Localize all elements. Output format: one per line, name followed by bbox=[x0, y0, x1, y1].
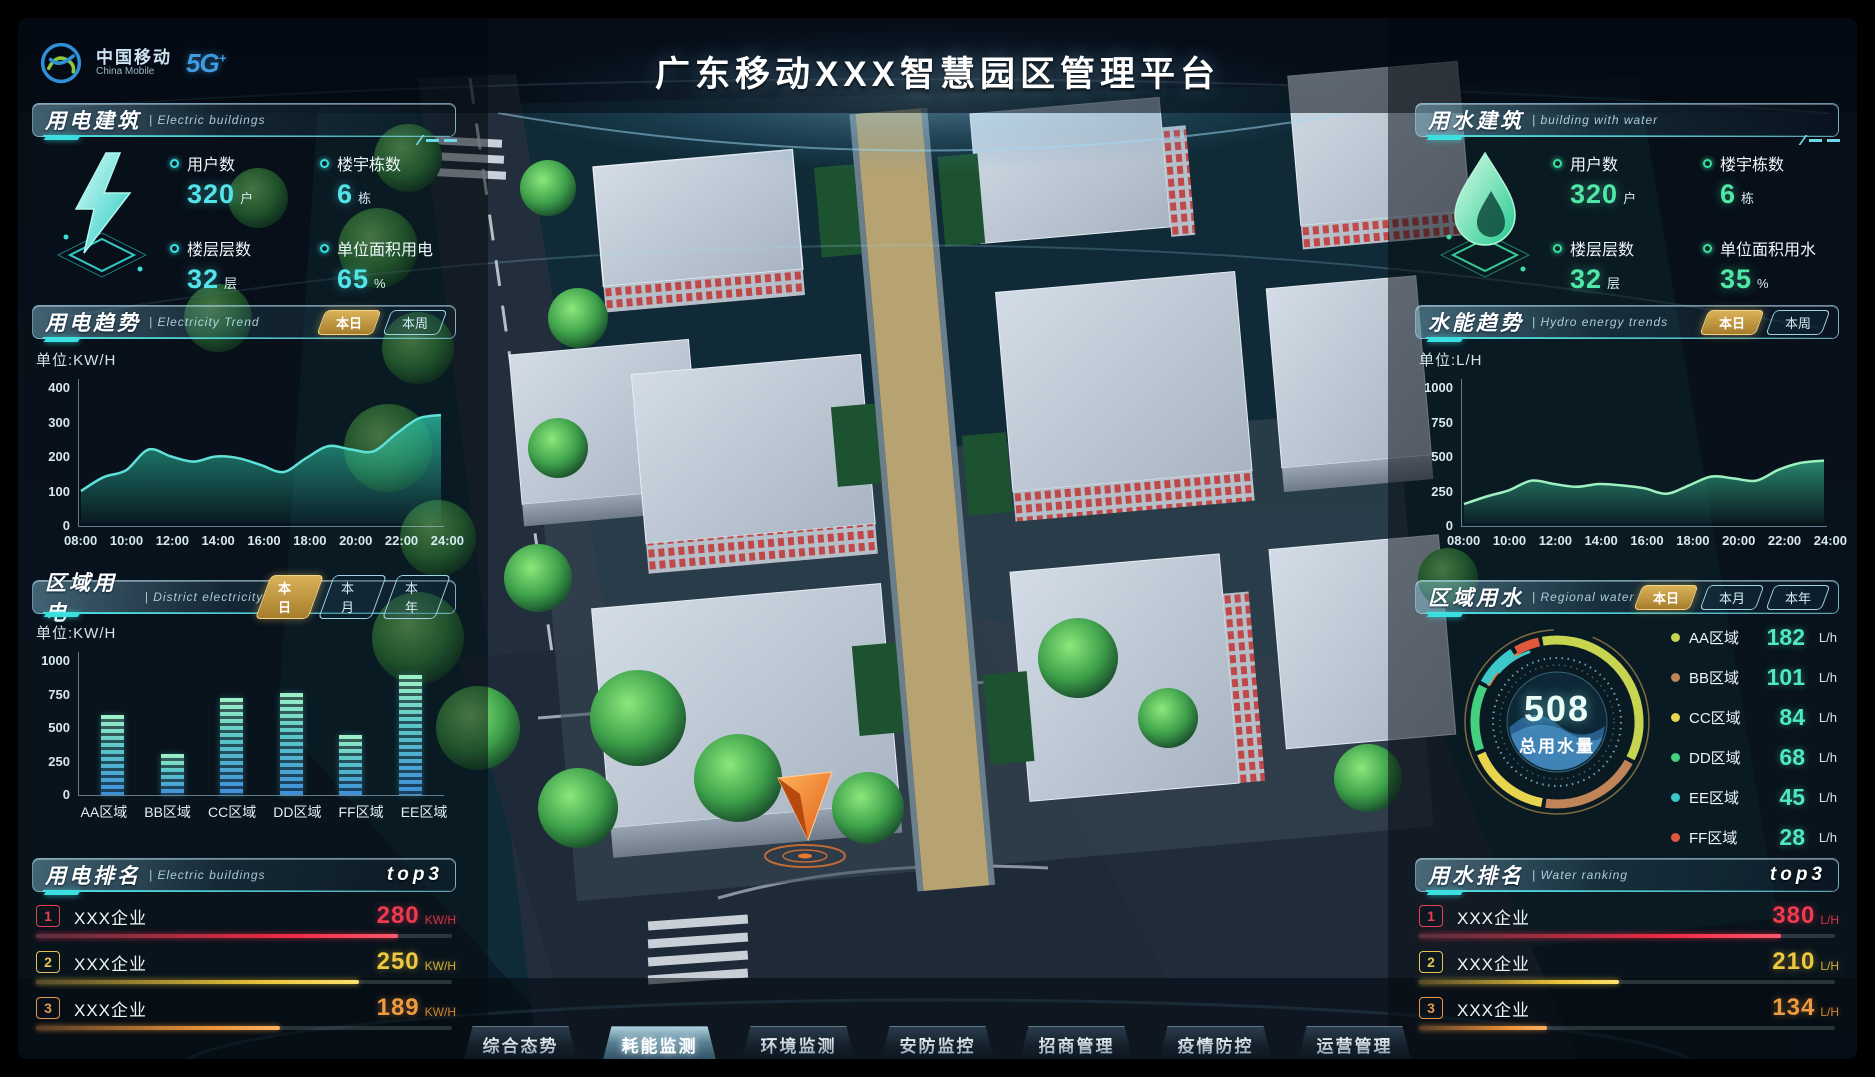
dashboard-screen: 中国移动 China Mobile 5G+ 广东移动XXX智慧园区管理平台 用电… bbox=[18, 18, 1857, 1059]
panel-title: 区域用电 bbox=[45, 567, 137, 627]
stat-building-count: 楼宇栋数 6栋 bbox=[1703, 151, 1857, 210]
rank-badge: 2 bbox=[1419, 951, 1443, 973]
ranking-list: 1 XXX企业 280 KW/H 2 XXX企业 250 KW/H 3 bbox=[36, 902, 456, 1040]
panel-header: 用水建筑 | building with water bbox=[1415, 103, 1839, 137]
legend-item: BB区域 101 L/h bbox=[1671, 664, 1837, 691]
page-title: 广东移动XXX智慧园区管理平台 bbox=[655, 46, 1220, 97]
bottom-nav: 综合态势 耗能监测 环境监测 安防监控 招商管理 疫情防控 运营管理 bbox=[464, 1026, 1412, 1059]
panel-subtitle: | Electricity Trend bbox=[149, 315, 260, 329]
legend-dot-icon bbox=[1671, 673, 1680, 682]
nav-operation-management[interactable]: 运营管理 bbox=[1298, 1026, 1412, 1059]
district-electricity-chart: 10007505002500 bbox=[32, 652, 452, 796]
legend-item: FF区域 28 L/h bbox=[1671, 824, 1837, 851]
panel-title: 用电趋势 bbox=[45, 307, 141, 337]
panel-title: 用水建筑 bbox=[1428, 105, 1524, 135]
top3-label: top3 bbox=[387, 864, 443, 886]
panel-title: 用电建筑 bbox=[45, 105, 141, 135]
stat-floor-count: 楼层层数 32层 bbox=[1553, 236, 1703, 295]
panel-subtitle: | building with water bbox=[1532, 113, 1658, 127]
location-marker-icon[interactable] bbox=[760, 770, 850, 870]
panel-electricity-trend: 用电趋势 | Electricity Trend 本日 本周 单位:KW/H 4… bbox=[32, 305, 456, 565]
stat-unit-area-water: 单位面积用水 35% bbox=[1703, 236, 1857, 295]
tab-today[interactable]: 本日 bbox=[1633, 585, 1698, 610]
panel-header: 用电趋势 | Electricity Trend 本日 本周 bbox=[32, 305, 456, 339]
tab-this-week[interactable]: 本周 bbox=[382, 310, 447, 335]
panel-title: 区域用水 bbox=[1428, 582, 1524, 612]
ranking-row: 1 XXX企业 380 L/H bbox=[1419, 902, 1839, 948]
panel-subtitle: | Hydro energy trends bbox=[1532, 315, 1668, 329]
stat-floor-count: 楼层层数 32层 bbox=[170, 236, 320, 295]
stat-unit-area-electricity: 单位面积用电 65% bbox=[320, 236, 500, 295]
panel-subtitle: | Regional water bbox=[1532, 590, 1635, 604]
stat-users: 用户数 320户 bbox=[170, 151, 320, 210]
panel-subtitle: | District electricity bbox=[145, 590, 263, 604]
brand-name-cn: 中国移动 bbox=[96, 49, 172, 67]
panel-electric-buildings: 用电建筑 | Electric buildings 用户数 320户 楼宇栋数 … bbox=[32, 103, 456, 303]
5g-badge: 5G+ bbox=[186, 48, 225, 79]
bullet-icon bbox=[170, 159, 179, 168]
tab-today[interactable]: 本日 bbox=[255, 575, 324, 619]
nav-environment-monitoring[interactable]: 环境监测 bbox=[742, 1026, 856, 1059]
water-donut-chart: 508 总用水量 bbox=[1459, 624, 1655, 820]
water-legend: AA区域 182 L/h BB区域 101 L/h CC区域 84 L/h DD… bbox=[1671, 624, 1837, 851]
panel-hydro-trend: 水能趋势 | Hydro energy trends 本日 本周 单位:L/H … bbox=[1415, 305, 1839, 565]
panel-title: 用电排名 bbox=[45, 860, 141, 890]
panel-water-ranking: 用水排名 | Water ranking top3 1 XXX企业 380 L/… bbox=[1415, 858, 1839, 1038]
legend-dot-icon bbox=[1671, 713, 1680, 722]
panel-header: 水能趋势 | Hydro energy trends 本日 本周 bbox=[1415, 305, 1839, 339]
rank-badge: 1 bbox=[36, 905, 60, 927]
rank-badge: 2 bbox=[36, 951, 60, 973]
panel-water-buildings: 用水建筑 | building with water 用户数 320户 楼宇栋数… bbox=[1415, 103, 1839, 303]
lightning-icon bbox=[46, 147, 158, 287]
panel-subtitle: | Water ranking bbox=[1532, 868, 1628, 882]
rank-badge: 3 bbox=[36, 997, 60, 1019]
rank-badge: 1 bbox=[1419, 905, 1443, 927]
ranking-row: 3 XXX企业 189 KW/H bbox=[36, 994, 456, 1040]
ranking-row: 3 XXX企业 134 L/H bbox=[1419, 994, 1839, 1040]
panel-header: 用水排名 | Water ranking top3 bbox=[1415, 858, 1839, 892]
china-mobile-logo-icon bbox=[40, 42, 82, 84]
ranking-row: 1 XXX企业 280 KW/H bbox=[36, 902, 456, 948]
legend-dot-icon bbox=[1671, 793, 1680, 802]
ranking-row: 2 XXX企业 210 L/H bbox=[1419, 948, 1839, 994]
ranking-list: 1 XXX企业 380 L/H 2 XXX企业 210 L/H 3 bbox=[1419, 902, 1839, 1040]
nav-energy-monitoring[interactable]: 耗能监测 bbox=[603, 1026, 717, 1059]
electricity-trend-chart: 4003002001000 bbox=[32, 379, 452, 527]
stat-users: 用户数 320户 bbox=[1553, 151, 1703, 210]
bullet-icon bbox=[1553, 159, 1562, 168]
ranking-row: 2 XXX企业 250 KW/H bbox=[36, 948, 456, 994]
tab-this-month[interactable]: 本月 bbox=[1699, 585, 1764, 610]
bullet-icon bbox=[1553, 244, 1562, 253]
unit-label: 单位:KW/H bbox=[36, 622, 116, 643]
bullet-icon bbox=[320, 244, 329, 253]
bullet-icon bbox=[1703, 159, 1712, 168]
nav-investment-management[interactable]: 招商管理 bbox=[1020, 1026, 1134, 1059]
nav-overall-situation[interactable]: 综合态势 bbox=[464, 1026, 578, 1059]
legend-dot-icon bbox=[1671, 753, 1680, 762]
bullet-icon bbox=[170, 244, 179, 253]
panel-title: 用水排名 bbox=[1428, 860, 1524, 890]
stats-grid: 用户数 320户 楼宇栋数 6栋 楼层层数 32层 单位面积用水 35% bbox=[1553, 151, 1857, 295]
stat-building-count: 楼宇栋数 6栋 bbox=[320, 151, 500, 210]
panel-header: 用电建筑 | Electric buildings bbox=[32, 103, 456, 137]
panel-subtitle: | Electric buildings bbox=[149, 868, 266, 882]
legend-dot-icon bbox=[1671, 633, 1680, 642]
panel-subtitle: | Electric buildings bbox=[149, 113, 266, 127]
rank-badge: 3 bbox=[1419, 997, 1443, 1019]
bullet-icon bbox=[320, 159, 329, 168]
panel-electric-ranking: 用电排名 | Electric buildings top3 1 XXX企业 2… bbox=[32, 858, 456, 1038]
header-deco bbox=[419, 135, 457, 145]
unit-label: 单位:L/H bbox=[1419, 349, 1483, 370]
tab-this-week[interactable]: 本周 bbox=[1765, 310, 1830, 335]
stats-grid: 用户数 320户 楼宇栋数 6栋 楼层层数 32层 单位面积用电 65% bbox=[170, 151, 500, 295]
panel-title: 水能趋势 bbox=[1428, 307, 1524, 337]
panel-header: 用电排名 | Electric buildings top3 bbox=[32, 858, 456, 892]
panel-district-electricity: 区域用电 | District electricity 本日 本月 本年 单位:… bbox=[32, 580, 456, 840]
nav-security-monitoring[interactable]: 安防监控 bbox=[881, 1026, 995, 1059]
water-drop-icon bbox=[1429, 147, 1541, 287]
tab-this-year[interactable]: 本年 bbox=[1765, 585, 1830, 610]
tab-today[interactable]: 本日 bbox=[316, 310, 381, 335]
header-deco bbox=[1802, 135, 1840, 145]
bullet-icon bbox=[1703, 244, 1712, 253]
nav-epidemic-prevention[interactable]: 疫情防控 bbox=[1159, 1026, 1273, 1059]
legend-item: DD区域 68 L/h bbox=[1671, 744, 1837, 771]
unit-label: 单位:KW/H bbox=[36, 349, 116, 370]
panel-header: 区域用电 | District electricity 本日 本月 本年 bbox=[32, 580, 456, 614]
tab-today[interactable]: 本日 bbox=[1699, 310, 1764, 335]
hydro-trend-chart: 10007505002500 bbox=[1415, 379, 1835, 527]
tab-this-month[interactable]: 本月 bbox=[318, 575, 387, 619]
panel-regional-water: 区域用水 | Regional water 本日 本月 本年 bbox=[1415, 580, 1839, 840]
legend-item: EE区域 45 L/h bbox=[1671, 784, 1837, 811]
top3-label: top3 bbox=[1770, 864, 1826, 886]
legend-item: AA区域 182 L/h bbox=[1671, 624, 1837, 651]
brand-name-en: China Mobile bbox=[96, 67, 172, 78]
legend-item: CC区域 84 L/h bbox=[1671, 704, 1837, 731]
brand-logo: 中国移动 China Mobile 5G+ bbox=[40, 42, 225, 84]
tab-this-year[interactable]: 本年 bbox=[382, 575, 451, 619]
panel-header: 区域用水 | Regional water 本日 本月 本年 bbox=[1415, 580, 1839, 614]
legend-dot-icon bbox=[1671, 833, 1680, 842]
